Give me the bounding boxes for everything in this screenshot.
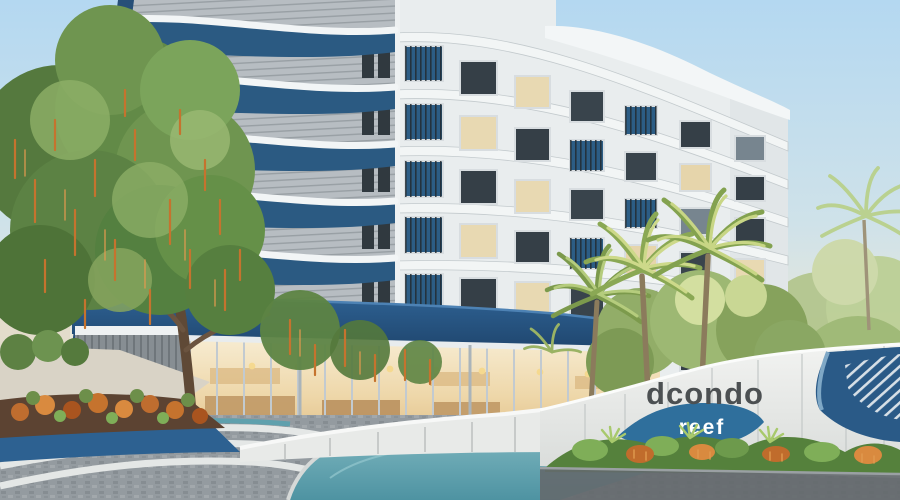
sign-brand-text: dcondo bbox=[646, 376, 764, 411]
scene-svg: dcondo reef bbox=[0, 0, 900, 500]
architectural-rendering: dcondo reef bbox=[0, 0, 900, 500]
sign-sub-text: reef bbox=[679, 416, 726, 439]
